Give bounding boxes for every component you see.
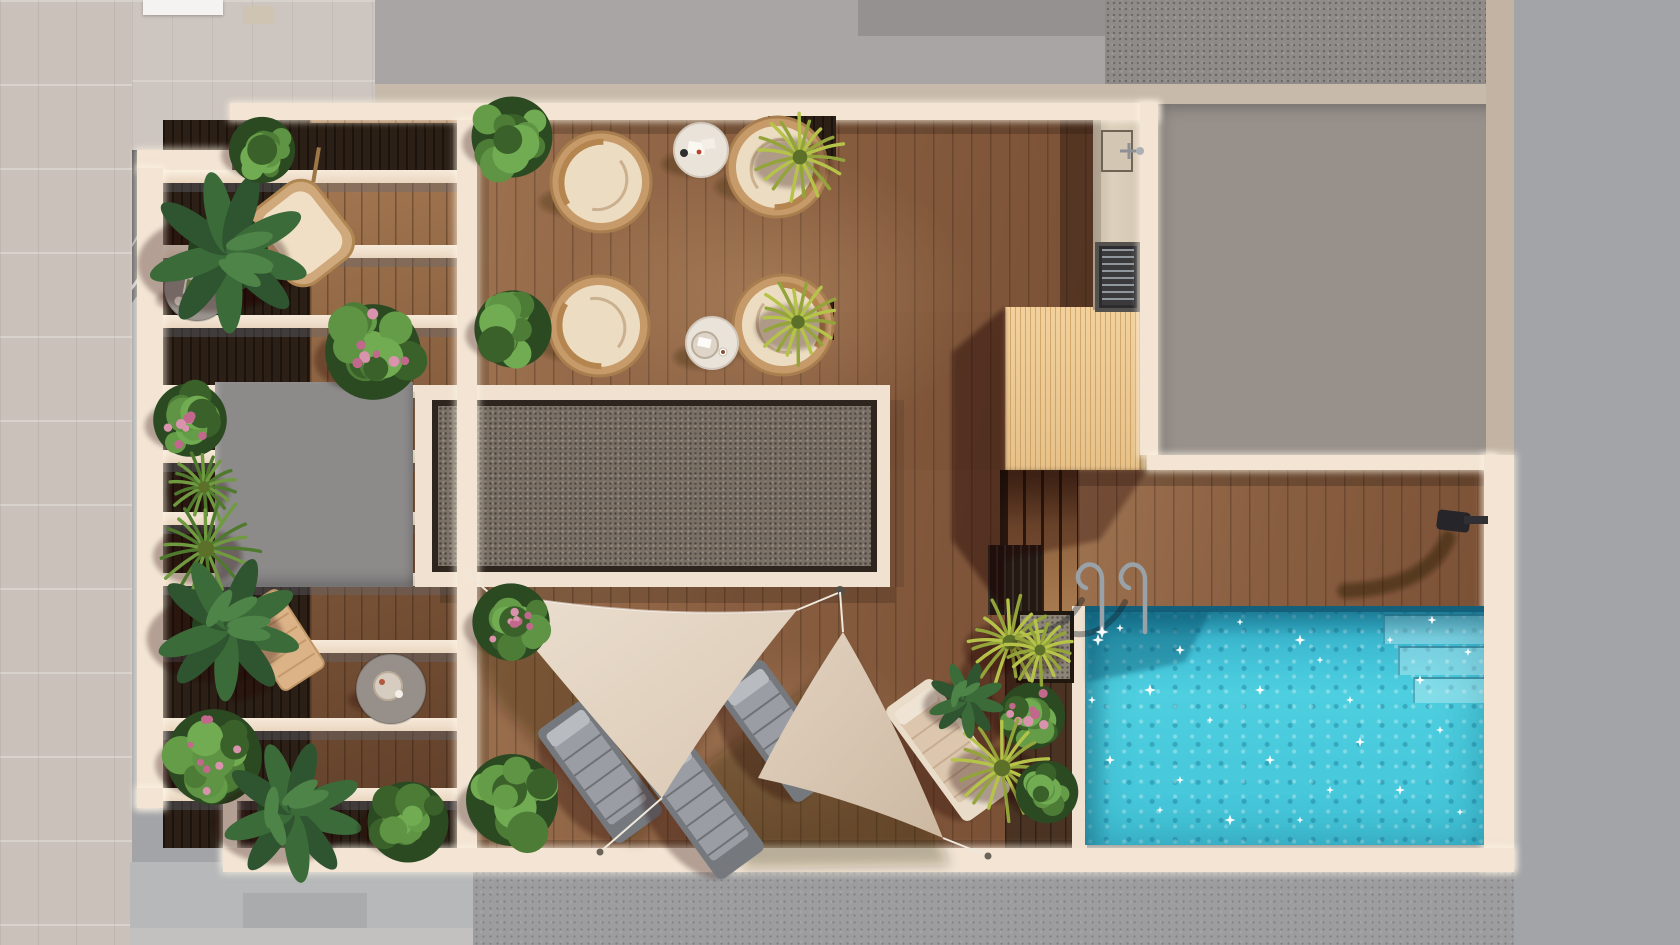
pool-terrace-deck (1078, 470, 1490, 612)
planter-gravel-box (1016, 611, 1074, 683)
neighbor-roof-textured (1105, 0, 1486, 84)
gravel-fill (438, 406, 871, 566)
pergola-beam-shadow (163, 731, 473, 740)
planter-palm-mid (770, 300, 834, 340)
pergola-beam (163, 640, 473, 653)
neighbor-roof-slab-dark (858, 0, 1105, 36)
roof-step (243, 6, 273, 24)
pergola-beam-shadow (163, 183, 473, 192)
planter-palm-top (768, 116, 836, 160)
parapet-top (375, 84, 1486, 104)
pergola-beam-shadow (163, 653, 473, 662)
pool-step-2 (1398, 646, 1484, 675)
apron-inset (243, 893, 367, 928)
skylight-box (143, 0, 223, 15)
pergola-beam-shadow (163, 328, 473, 337)
pergola-beam (163, 718, 473, 731)
gray-field-right (1514, 0, 1680, 945)
wall-poolterrace-top (1147, 455, 1495, 470)
bbq-grill (1099, 246, 1137, 308)
wall-top (230, 103, 1158, 120)
wall-right-lower (1484, 455, 1514, 870)
pergola-beam (163, 788, 473, 801)
wall-right-upper (1140, 103, 1158, 455)
pergola-beam-shadow (163, 801, 473, 810)
wall-notch-top (137, 150, 232, 170)
wall-left (137, 168, 163, 808)
apron-lower (130, 928, 473, 945)
courtyard (1158, 104, 1486, 455)
wall-bottom (223, 848, 1514, 872)
sauna-platform (1005, 307, 1147, 470)
rooftop-terrace-render (0, 0, 1680, 945)
pergola-beam (163, 315, 473, 328)
sidewalk-left (0, 0, 132, 945)
kitchen-sink (1101, 130, 1133, 172)
architecture-layer (0, 0, 1680, 945)
stair-tread (1044, 470, 1059, 612)
pergola-beam (163, 245, 473, 258)
planter-slat-box (988, 545, 1042, 615)
pergola-beam (163, 170, 473, 183)
street-bottom (473, 863, 1514, 945)
pool-step-3 (1413, 677, 1484, 703)
wing-planter-top (235, 123, 473, 170)
pergola-beam-shadow (163, 586, 473, 595)
wall-left-bottom-corner (137, 788, 163, 808)
wall-divider (457, 120, 477, 850)
stair-tread (1062, 470, 1077, 612)
pool-step-1 (1383, 614, 1484, 644)
elevator-block (215, 382, 413, 587)
parapet-right (1486, 0, 1514, 455)
pergola-beam-shadow (163, 258, 473, 267)
